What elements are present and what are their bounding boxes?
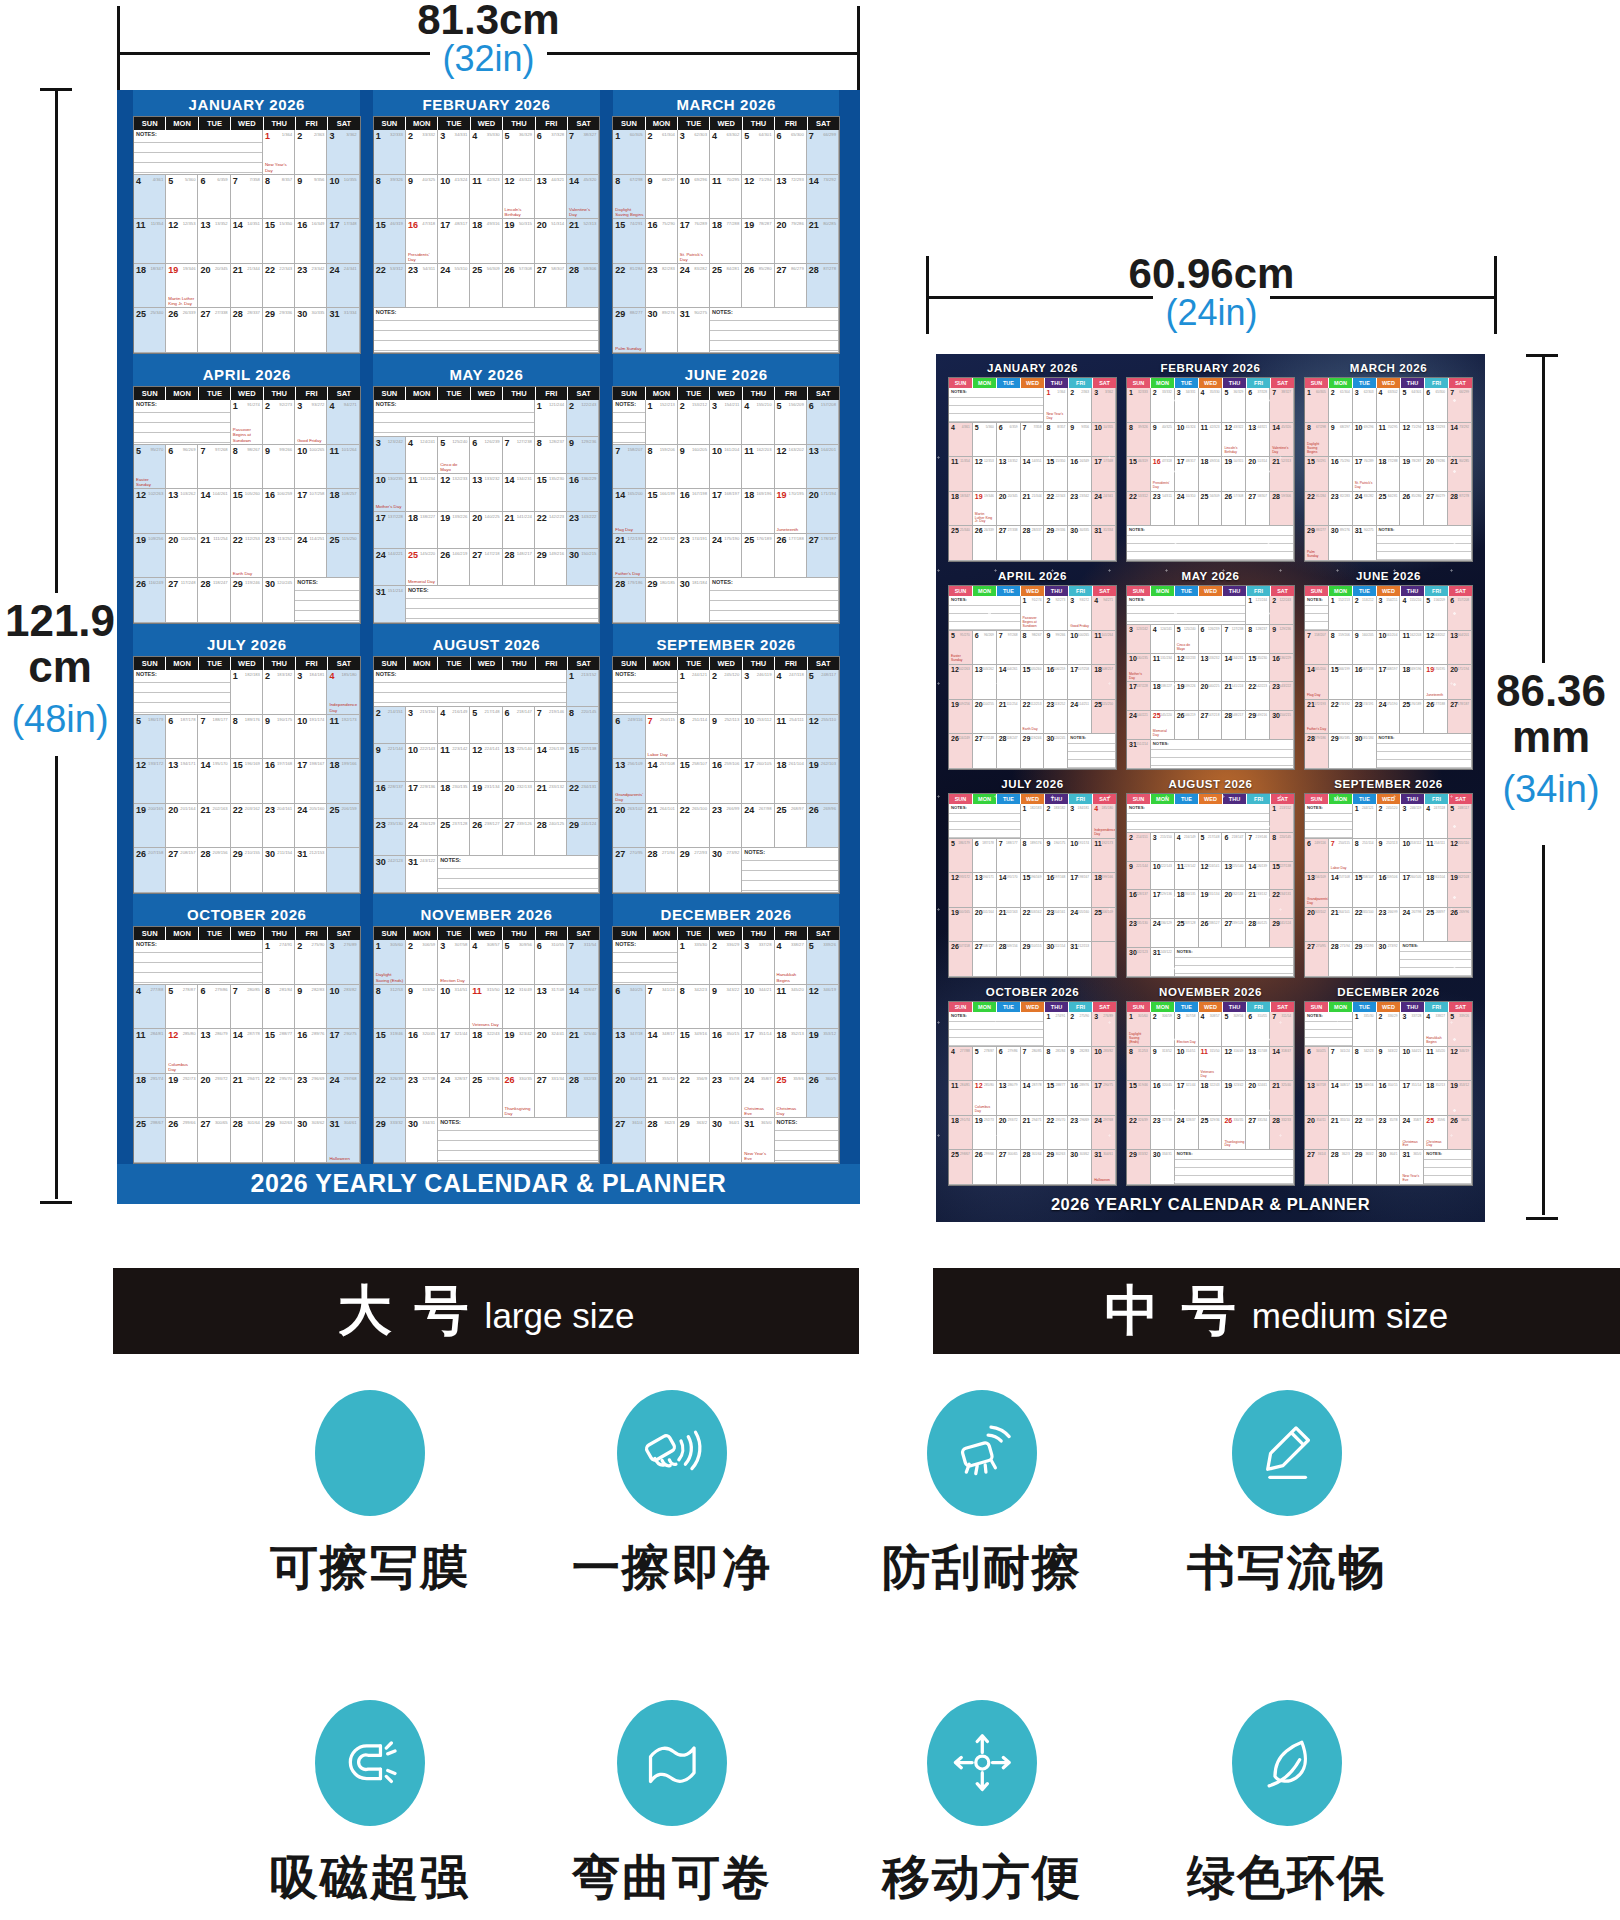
date-number: 13 bbox=[505, 745, 515, 755]
date-number: 2 bbox=[712, 941, 717, 951]
day-of-year-note: 4/361 bbox=[962, 425, 970, 429]
date-number: 21 bbox=[999, 701, 1007, 708]
day-of-year-note: 326/39 bbox=[1138, 1118, 1148, 1122]
calendar-day-cell: 4277/88 bbox=[949, 1047, 973, 1082]
week-row: 3123/2424124/2415125/240Cinco de Mayo612… bbox=[374, 437, 600, 474]
date-number: 20 bbox=[1426, 458, 1434, 465]
calendar-day-cell: 2859/306 bbox=[567, 264, 599, 309]
day-of-year-note: 141/224 bbox=[517, 514, 532, 519]
day-of-year-note: 123/242 bbox=[388, 439, 403, 444]
calendar-day-cell: 6279/86 bbox=[198, 985, 230, 1030]
day-of-year-note: 192/173 bbox=[1101, 841, 1113, 845]
date-number: 2 bbox=[1070, 1013, 1074, 1020]
date-number: 16 bbox=[297, 1030, 307, 1040]
calendar-day-cell: 19200/165 bbox=[949, 908, 973, 943]
date-number: 4 bbox=[408, 438, 413, 448]
date-number: 11 bbox=[1094, 840, 1101, 847]
calendar-day-cell: 696/269 bbox=[166, 445, 198, 490]
calendar-day-cell: 1344/321 bbox=[1246, 423, 1270, 458]
date-number: 18 bbox=[712, 220, 722, 230]
day-of-year-note: 167/198 bbox=[692, 491, 707, 496]
day-of-year-note: 166/199 bbox=[660, 491, 675, 496]
calendar-day-cell: 1616/349 bbox=[295, 219, 327, 264]
day-of-year-note: 214/151 bbox=[1136, 835, 1148, 839]
notes-cell: NOTES: bbox=[1175, 948, 1294, 977]
day-of-year-note: 358/7 bbox=[761, 1076, 771, 1081]
calendar-day-cell: 334/331 bbox=[1175, 388, 1199, 423]
date-number: 6 bbox=[1450, 597, 1454, 604]
date-number: 23 bbox=[648, 265, 658, 275]
date-number: 2 bbox=[376, 708, 381, 718]
date-number: 3 bbox=[440, 941, 445, 951]
week-row: 2988/277Palm Sunday3089/2763190/275NOTES… bbox=[613, 308, 839, 353]
calendar-day-cell: 27208/157 bbox=[973, 942, 997, 977]
notes-cell: NOTES: bbox=[742, 848, 839, 893]
day-of-year-note: 347/18 bbox=[1316, 1083, 1326, 1087]
notes-label: NOTES: bbox=[1177, 1151, 1195, 1156]
calendar-day-cell: 29302/63 bbox=[1044, 1150, 1068, 1185]
calendar-day-cell: 28332/33 bbox=[1270, 1116, 1294, 1151]
day-of-year-note: 256/109 bbox=[1314, 875, 1326, 879]
calendar-day-cell: 3276/89 bbox=[1092, 1012, 1116, 1047]
holiday-label: New Year's Day bbox=[265, 162, 293, 172]
date-number: 24 bbox=[1094, 1117, 1102, 1124]
calendar-day-cell: 1313/352 bbox=[198, 219, 230, 264]
day-of-year-note: 161/204 bbox=[1386, 633, 1398, 637]
day-of-year-note: 265/100 bbox=[692, 806, 707, 811]
date-number: 3 bbox=[1094, 1013, 1098, 1020]
dow-header-cell: FRI bbox=[1247, 1002, 1270, 1012]
date-number: 16 bbox=[297, 220, 307, 230]
date-number: 29 bbox=[265, 309, 275, 319]
day-of-year-note: 193/172 bbox=[958, 875, 970, 879]
calendar-day-cell: 19231/134 bbox=[1199, 890, 1223, 919]
week-row: 20263/10221264/10122265/10023266/9924267… bbox=[1305, 908, 1472, 943]
date-number: 21 bbox=[505, 513, 515, 523]
notes-label: NOTES: bbox=[440, 1119, 463, 1125]
day-of-year-note: 300/65 bbox=[1008, 1152, 1018, 1156]
date-number: 3 bbox=[1402, 1013, 1406, 1020]
day-of-year-note: 94/271 bbox=[344, 402, 357, 407]
dow-header-cell: THU bbox=[743, 927, 774, 940]
calendar-day-cell: 12224/141 bbox=[470, 744, 502, 781]
notes-label: NOTES: bbox=[1129, 597, 1147, 602]
day-of-year-note: 294/71 bbox=[1032, 1118, 1042, 1122]
day-of-year-note: 164/201 bbox=[821, 447, 836, 452]
week-row: 7158/2078159/2069160/20510161/20411162/2… bbox=[1305, 631, 1472, 666]
calendar-day-cell: 24328/37 bbox=[438, 1074, 470, 1119]
holiday-label: Labor Day bbox=[1331, 867, 1351, 871]
calendar-day-cell: 19323/42 bbox=[503, 1029, 535, 1074]
day-of-year-note: 204/161 bbox=[1054, 910, 1066, 914]
week-row: 12102/26313103/26214104/26115105/2601610… bbox=[949, 665, 1116, 700]
day-of-year-note: 51/314 bbox=[551, 221, 564, 226]
date-number: 31 bbox=[1402, 1151, 1410, 1158]
day-of-year-note: 245/120 bbox=[724, 672, 739, 677]
day-of-year-note: 29/336 bbox=[279, 310, 292, 315]
day-of-year-note: 236/129 bbox=[420, 821, 435, 826]
calendar-day-cell: 11284/81 bbox=[949, 1081, 973, 1116]
date-number: 2 bbox=[1331, 389, 1335, 396]
large-calendar-footer: 2026 YEARLY CALENDAR & PLANNER bbox=[117, 1164, 860, 1204]
day-of-year-note: 185/180 bbox=[342, 672, 357, 677]
calendar-day-cell: 11/364New Year's Day bbox=[1044, 388, 1068, 423]
date-number: 9 bbox=[1046, 840, 1050, 847]
date-number: 7 bbox=[1272, 1013, 1276, 1020]
calendar-day-cell: 9129/236 bbox=[1270, 625, 1294, 654]
calendar-day-cell: 2183/182 bbox=[1044, 804, 1068, 839]
day-of-year-note: 190/175 bbox=[277, 717, 292, 722]
day-of-year-note: 78/287 bbox=[1412, 459, 1422, 463]
calendar-day-cell: 25145/220Memorial Day bbox=[1151, 711, 1175, 740]
dow-header-cell: WED bbox=[1377, 586, 1400, 596]
date-number: 29 bbox=[233, 849, 243, 859]
calendar-day-cell: 13225/140 bbox=[503, 744, 535, 781]
day-of-year-note: 271/94 bbox=[662, 850, 675, 855]
notes-cell: NOTES: bbox=[949, 1012, 1044, 1047]
calendar-day-cell: 2556/309 bbox=[470, 264, 502, 309]
date-number: 1 bbox=[569, 671, 574, 681]
dow-header-cell: TUE bbox=[997, 794, 1020, 804]
notes-cell: NOTES: bbox=[949, 596, 1021, 631]
calendar-day-cell: 10314/51 bbox=[1175, 1047, 1199, 1082]
calendar-day-cell: 2281/284 bbox=[613, 264, 645, 309]
date-number: 22 bbox=[680, 1075, 690, 1085]
calendar-day-cell: 17321/44 bbox=[1175, 1081, 1199, 1116]
calendar-day-cell: 27178/187 bbox=[807, 534, 839, 579]
date-number: 6 bbox=[168, 716, 173, 726]
calendar-day-cell: 191/274Passover Begins at Sundown bbox=[231, 400, 263, 445]
day-of-year-note: 40/325 bbox=[1162, 425, 1172, 429]
date-number: 24 bbox=[1402, 909, 1410, 916]
calendar-day-cell: 14104/261 bbox=[198, 489, 230, 534]
calendar-day-cell: 24267/98 bbox=[742, 804, 774, 849]
date-number: 19 bbox=[472, 783, 482, 793]
date-number: 26 bbox=[1450, 909, 1458, 916]
dow-header-cell: THU bbox=[264, 657, 295, 670]
week-row: 1574/2911675/2901776/289St. Patrick's Da… bbox=[613, 219, 839, 264]
calendar-day-cell: 2152/313 bbox=[567, 219, 599, 264]
calendar-day-cell: 29149/216 bbox=[1246, 711, 1270, 740]
day-of-year-note: 161/204 bbox=[724, 447, 739, 452]
date-number: 21 bbox=[1331, 1117, 1339, 1124]
dow-header-cell: THU bbox=[1045, 586, 1068, 596]
week-row: 28179/18629180/18530181/184NOTES: bbox=[613, 578, 839, 623]
calendar-day-cell: 132/333 bbox=[374, 130, 406, 175]
day-of-year-note: 304/61 bbox=[344, 1120, 357, 1125]
date-number: 23 bbox=[712, 805, 722, 815]
calendar-day-cell: 4247/118 bbox=[775, 670, 807, 715]
day-of-year-note: 10/355 bbox=[1103, 425, 1113, 429]
calendar-day-cell: 1142/323 bbox=[470, 175, 502, 220]
date-number: 13 bbox=[1248, 1048, 1256, 1055]
date-number: 24 bbox=[376, 550, 386, 560]
date-number: 5 bbox=[1177, 626, 1181, 633]
calendar-day-cell: 999/266 bbox=[1044, 631, 1068, 666]
calendar-day-cell: 9190/175 bbox=[1044, 839, 1068, 874]
date-number: 5 bbox=[951, 840, 955, 847]
calendar-day-cell: 867/298Daylight Saving Begins bbox=[1305, 423, 1329, 458]
calendar-day-cell: 30273/92 bbox=[1377, 942, 1401, 977]
holiday-label: Palm Sunday bbox=[1307, 551, 1327, 559]
calendar-day-cell: 19231/134 bbox=[470, 782, 502, 819]
date-number: 10 bbox=[329, 176, 339, 186]
date-number: 9 bbox=[712, 716, 717, 726]
month-grid: SUNMONTUEWEDTHUFRISAT160/305261/304362/3… bbox=[612, 116, 840, 354]
date-number: 25 bbox=[951, 527, 959, 534]
calendar-day-cell: 16197/168 bbox=[1044, 873, 1068, 908]
day-of-year-note: 325/40 bbox=[1281, 1083, 1291, 1087]
calendar-day-cell: 15349/16 bbox=[678, 1029, 710, 1074]
day-of-year-note: 84/281 bbox=[726, 266, 739, 271]
calendar-day-cell: 233/332 bbox=[406, 130, 438, 175]
date-number: 10 bbox=[1355, 424, 1363, 431]
large-calendar-months-grid: JANUARY 2026SUNMONTUEWEDTHUFRISATNOTES:1… bbox=[133, 94, 840, 1164]
day-of-year-note: 239/126 bbox=[517, 821, 532, 826]
week-row: 1305/60Daylight Saving (Ends)2306/593307… bbox=[1127, 1012, 1294, 1047]
date-number: 1 bbox=[1331, 597, 1335, 604]
date-number: 2 bbox=[1379, 805, 1383, 812]
date-number: 22 bbox=[1355, 1117, 1363, 1124]
date-number: 21 bbox=[200, 535, 210, 545]
day-of-year-note: 348/17 bbox=[1340, 1083, 1350, 1087]
date-number: 2 bbox=[569, 401, 574, 411]
calendar-day-cell: 5309/56 bbox=[1222, 1012, 1246, 1047]
week-row: 30242/12331243/122NOTES: bbox=[1127, 948, 1294, 977]
calendar-day-cell: 2183/182 bbox=[263, 670, 295, 715]
date-number: 9 bbox=[1379, 1048, 1383, 1055]
dow-header-cell: FRI bbox=[1247, 378, 1270, 388]
day-of-year-note: 223/142 bbox=[1184, 864, 1196, 868]
day-of-year-note: 244/121 bbox=[1362, 806, 1374, 810]
day-of-year-note: 36/329 bbox=[519, 132, 532, 137]
date-number: 1 bbox=[376, 131, 381, 141]
calendar-day-cell: 4185/180Independence Day bbox=[1092, 804, 1116, 839]
day-of-year-note: 34/331 bbox=[1186, 390, 1196, 394]
day-of-year-note: 181/184 bbox=[692, 580, 707, 585]
calendar-day-cell: 20140/225 bbox=[1199, 682, 1223, 711]
day-of-year-note: 338/27 bbox=[1435, 1014, 1445, 1018]
date-number: 18 bbox=[1201, 1082, 1209, 1089]
date-number: 5 bbox=[951, 632, 955, 639]
calendar-day-cell: 29180/185 bbox=[1329, 734, 1353, 769]
calendar-day-cell: 7158/207 bbox=[1305, 631, 1329, 666]
day-of-year-note: 194/171 bbox=[982, 875, 994, 879]
holiday-label: Memorial Day bbox=[408, 579, 436, 584]
calendar-day-cell: 14165/200Flag Day bbox=[1305, 665, 1329, 700]
month-grid: SUNMONTUEWEDTHUFRISAT1305/60Daylight Sav… bbox=[1126, 1001, 1295, 1186]
day-of-year-note: 63/302 bbox=[726, 132, 739, 137]
day-of-year-note: 142/223 bbox=[1256, 684, 1268, 688]
day-of-year-note: 341/24 bbox=[1340, 1049, 1350, 1053]
day-of-year-note: 297/68 bbox=[344, 1076, 357, 1081]
month-grid: SUNMONTUEWEDTHUFRISATNOTES:1121/2442122/… bbox=[373, 386, 601, 624]
date-number: 29 bbox=[680, 1119, 690, 1129]
calendar-day-cell: 999/266 bbox=[263, 445, 295, 490]
day-of-year-note: 87/278 bbox=[1459, 494, 1469, 498]
dow-header-cell: MON bbox=[1151, 586, 1174, 596]
dow-header-cell: THU bbox=[1223, 1002, 1246, 1012]
day-of-year-note: 350/15 bbox=[1388, 1083, 1398, 1087]
day-of-year-note: 358/7 bbox=[1413, 1118, 1421, 1122]
feature-label: 弯曲可卷 bbox=[552, 1846, 792, 1910]
calendar-day-cell: 29241/124 bbox=[1270, 919, 1294, 948]
date-number: 17 bbox=[329, 220, 339, 230]
day-of-year-note: 317/48 bbox=[1257, 1049, 1267, 1053]
calendar-day-cell: 20110/255 bbox=[166, 534, 198, 579]
calendar-day-cell: 26177/188 bbox=[775, 534, 807, 579]
date-number: 7 bbox=[200, 716, 205, 726]
calendar-day-cell: 2727/338 bbox=[198, 308, 230, 353]
notes-label: NOTES: bbox=[615, 401, 638, 407]
calendar-day-cell: 2306/59 bbox=[1151, 1012, 1175, 1047]
day-of-year-note: 251/114 bbox=[1362, 841, 1373, 845]
day-of-year-note: 124/241 bbox=[1160, 627, 1172, 631]
day-of-year-note: 293/72 bbox=[215, 1076, 228, 1081]
calendar-day-cell: 30150/215 bbox=[1270, 711, 1294, 740]
date-number: 13 bbox=[472, 475, 482, 485]
calendar-day-cell: 55/360 bbox=[973, 423, 997, 458]
day-of-year-note: 75/290 bbox=[1340, 459, 1350, 463]
calendar-day-cell: 1776/289St. Patrick's Day bbox=[1353, 457, 1377, 492]
day-of-year-note: 320/45 bbox=[422, 1031, 435, 1036]
date-number: 3 bbox=[744, 671, 749, 681]
day-of-year-note: 291/74 bbox=[150, 1076, 163, 1081]
day-of-year-note: 14/351 bbox=[247, 221, 260, 226]
day-of-year-note: 177/188 bbox=[789, 536, 804, 541]
dow-header-cell: MON bbox=[1329, 586, 1352, 596]
calendar-day-cell: 10253/112 bbox=[1400, 839, 1424, 874]
date-number: 7 bbox=[537, 708, 542, 718]
week-row: 2988/277Palm Sunday3089/2763190/275NOTES… bbox=[1305, 526, 1472, 561]
day-of-year-note: 221/144 bbox=[388, 746, 403, 751]
month-block: NOVEMBER 2026SUNMONTUEWEDTHUFRISAT1305/6… bbox=[373, 904, 601, 1164]
calendar-day-cell: 20293/72 bbox=[997, 1116, 1021, 1151]
calendar-day-cell: 25115/250 bbox=[327, 534, 359, 579]
dow-header-cell: SAT bbox=[1093, 794, 1116, 804]
calendar-day-cell: 132/333 bbox=[1127, 388, 1151, 423]
date-number: 14 bbox=[233, 220, 243, 230]
date-number: 23 bbox=[1153, 1117, 1161, 1124]
day-of-year-note: 248/117 bbox=[821, 672, 836, 677]
day-of-year-note: 203/162 bbox=[245, 806, 260, 811]
date-number: 24 bbox=[712, 535, 722, 545]
date-number: 22 bbox=[1129, 493, 1137, 500]
date-number: 17 bbox=[297, 760, 307, 770]
calendar-day-cell: 26269/96 bbox=[1448, 908, 1472, 943]
day-of-year-note: 51/314 bbox=[1257, 459, 1267, 463]
calendar-day-cell: 1152/213 bbox=[646, 400, 678, 445]
day-of-year-note: 155/210 bbox=[1410, 598, 1422, 602]
day-of-year-note: 140/225 bbox=[1208, 684, 1220, 688]
date-number: 15 bbox=[1046, 1082, 1054, 1089]
scratch-resistant-icon bbox=[927, 1390, 1037, 1516]
date-number: 13 bbox=[537, 986, 547, 996]
calendar-day-cell: 29241/124 bbox=[567, 819, 599, 856]
holiday-label: Martin Luther King Jr. Day bbox=[975, 513, 995, 525]
calendar-day-cell: 2657/308 bbox=[503, 264, 535, 309]
date-number: 7 bbox=[615, 446, 620, 456]
calendar-day-cell: 13347/18 bbox=[1305, 1081, 1329, 1116]
day-of-year-note: 94/271 bbox=[1103, 598, 1113, 602]
calendar-day-cell: 564/301 bbox=[1400, 388, 1424, 423]
dow-header-cell: THU bbox=[1401, 794, 1424, 804]
calendar-day-cell: 8342/23 bbox=[1353, 1047, 1377, 1082]
large-size-banner: 大 号 large size bbox=[113, 1268, 859, 1354]
calendar-day-cell: 99/356 bbox=[1068, 423, 1092, 458]
week-row: 15319/4616320/4517321/4418322/4319323/42… bbox=[374, 1029, 600, 1074]
calendar-day-cell: 11223/142 bbox=[438, 744, 470, 781]
notes-cell: NOTES: bbox=[374, 670, 567, 707]
date-number: 7 bbox=[1224, 626, 1228, 633]
holiday-label: Flag Day bbox=[615, 527, 643, 532]
calendar-day-cell: 1515/350 bbox=[263, 219, 295, 264]
date-number: 22 bbox=[265, 265, 275, 275]
date-number: 13 bbox=[777, 176, 787, 186]
date-number: 23 bbox=[265, 805, 275, 815]
medium-size-banner-cn: 中 号 bbox=[1105, 1275, 1240, 1348]
calendar-day-cell: 18108/257 bbox=[1092, 665, 1116, 700]
day-of-year-note: 135/230 bbox=[1256, 656, 1268, 660]
date-number: 23 bbox=[680, 535, 690, 545]
date-number: 28 bbox=[200, 579, 210, 589]
date-number: 29 bbox=[1307, 527, 1315, 534]
day-of-year-note: 316/49 bbox=[1234, 1049, 1244, 1053]
date-number: 18 bbox=[777, 1030, 787, 1040]
date-number: 23 bbox=[297, 265, 307, 275]
day-of-year-note: 345/20 bbox=[1435, 1049, 1445, 1053]
calendar-day-cell: 1121/244 bbox=[535, 400, 567, 437]
date-number: 24 bbox=[297, 535, 307, 545]
day-of-year-note: 328/37 bbox=[455, 1076, 468, 1081]
date-number: 14 bbox=[1023, 1082, 1031, 1089]
date-number: 30 bbox=[376, 857, 386, 867]
dow-header-cell: FRI bbox=[775, 927, 806, 940]
date-number: 29 bbox=[1355, 943, 1363, 950]
week-row: 8312/539313/5210314/5111315/50Veterans D… bbox=[1127, 1047, 1294, 1082]
day-of-year-note: 348/17 bbox=[662, 1031, 675, 1036]
day-of-year-note: 204/161 bbox=[277, 806, 292, 811]
holiday-label: Cinco de Mayo bbox=[440, 462, 468, 472]
day-of-year-note: 81/284 bbox=[630, 266, 643, 271]
day-of-year-note: 240/125 bbox=[549, 821, 564, 826]
calendar-day-cell: 14195/170 bbox=[198, 759, 230, 804]
date-number: 8 bbox=[233, 446, 238, 456]
week-row: 13347/1814348/1715349/1616350/1517351/14… bbox=[613, 1029, 839, 1074]
week-row: 132/333233/332334/331435/330536/329637/3… bbox=[1127, 388, 1294, 423]
date-number: 4 bbox=[472, 131, 477, 141]
date-number: 2 bbox=[1153, 389, 1157, 396]
calendar-day-cell: 12224/141 bbox=[1199, 862, 1223, 891]
date-number: 9 bbox=[297, 176, 302, 186]
date-number: 15 bbox=[680, 760, 690, 770]
date-number: 1 bbox=[1023, 597, 1027, 604]
day-of-year-note: 49/316 bbox=[487, 221, 500, 226]
calendar-day-cell: 20293/72 bbox=[198, 1074, 230, 1119]
dow-header-cell: SUN bbox=[949, 794, 972, 804]
date-number: 18 bbox=[136, 1075, 146, 1085]
day-of-week-header: SUNMONTUEWEDTHUFRISAT bbox=[374, 387, 600, 400]
date-number: 11 bbox=[1201, 424, 1208, 431]
day-of-year-note: 175/190 bbox=[1386, 702, 1398, 706]
date-number: 6 bbox=[809, 401, 814, 411]
date-number: 2 bbox=[1355, 597, 1359, 604]
day-of-year-note: 328/37 bbox=[1186, 1118, 1196, 1122]
calendar-day-cell: 20263/102 bbox=[1305, 908, 1329, 943]
date-number: 26 bbox=[809, 805, 819, 815]
day-of-year-note: 115/250 bbox=[1102, 702, 1113, 706]
notes-label: NOTES: bbox=[136, 941, 159, 947]
